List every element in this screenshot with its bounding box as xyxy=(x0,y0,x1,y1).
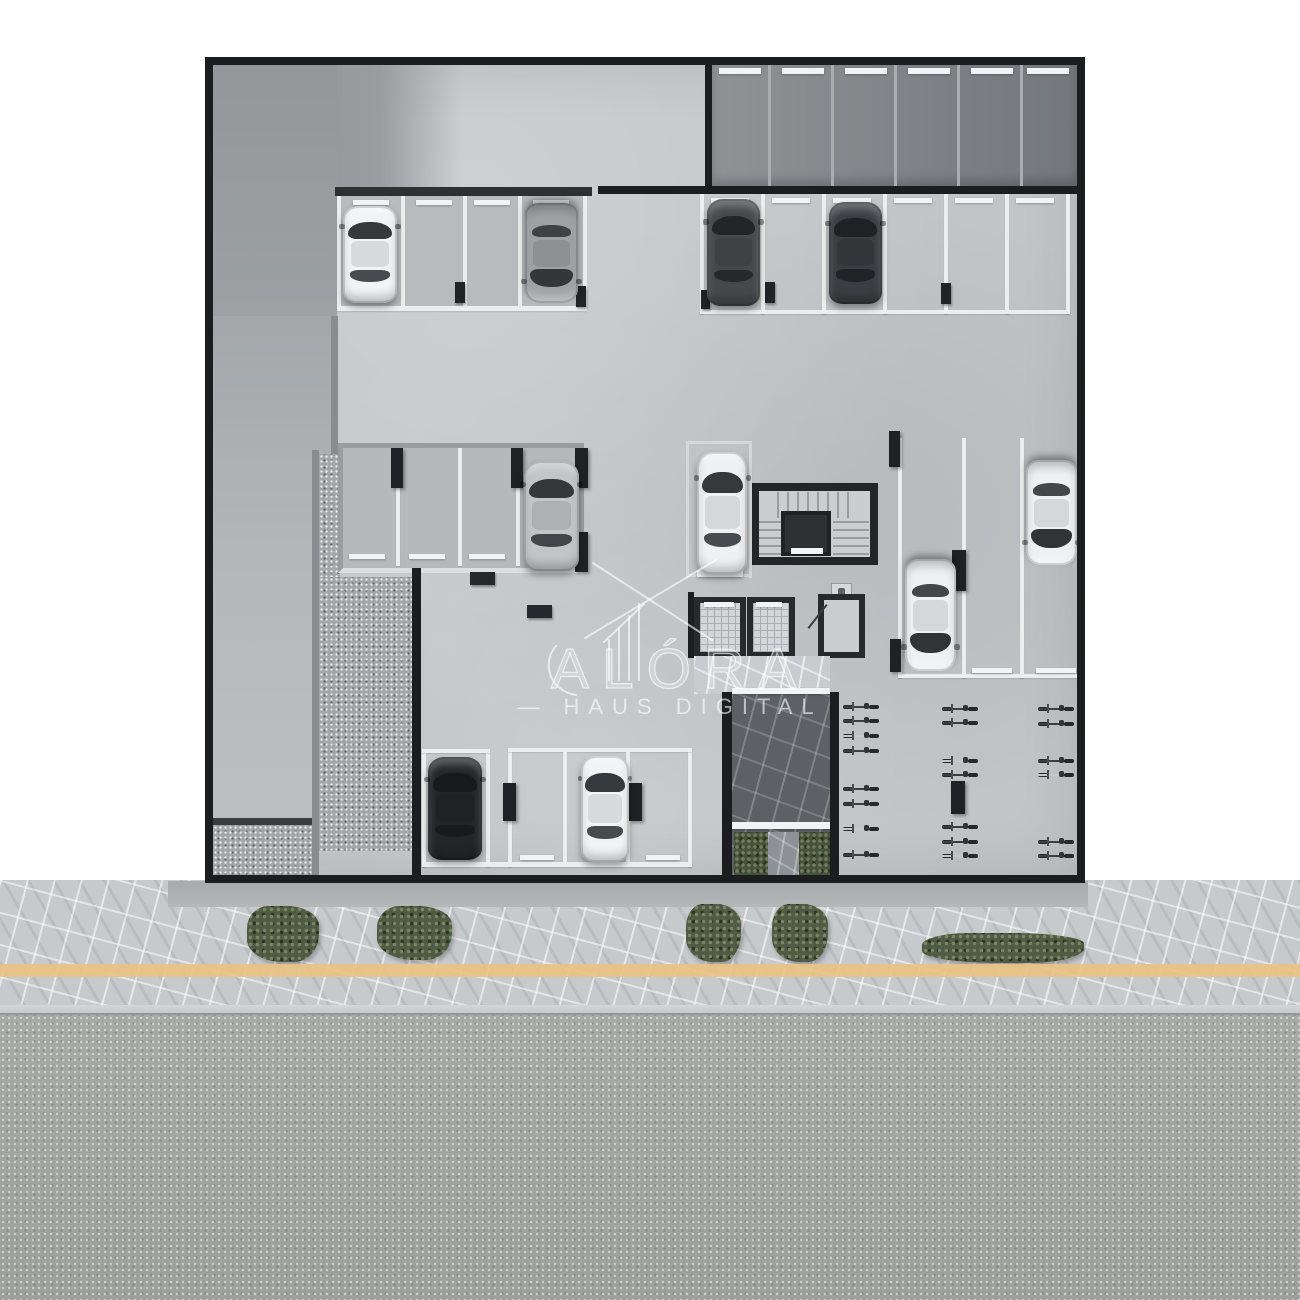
building-outer-wall xyxy=(205,57,1085,883)
tactile-guide-line xyxy=(0,964,1300,977)
watermark-tagline: — HAUS DIGITAL xyxy=(505,694,835,720)
floor-plan-render: ALÓRA — HAUS DIGITAL xyxy=(0,0,1300,1300)
hedge xyxy=(247,906,319,962)
hedge xyxy=(377,906,452,960)
roadway xyxy=(0,1015,1300,1300)
hedge xyxy=(922,933,1084,963)
hedge xyxy=(772,904,828,962)
watermark-tagline-text: HAUS DIGITAL xyxy=(563,694,822,719)
building-apron-strip xyxy=(168,881,1088,907)
watermark-brand: ALÓRA xyxy=(540,636,820,702)
watermark-dash: — xyxy=(517,694,548,719)
hedge xyxy=(686,904,741,962)
